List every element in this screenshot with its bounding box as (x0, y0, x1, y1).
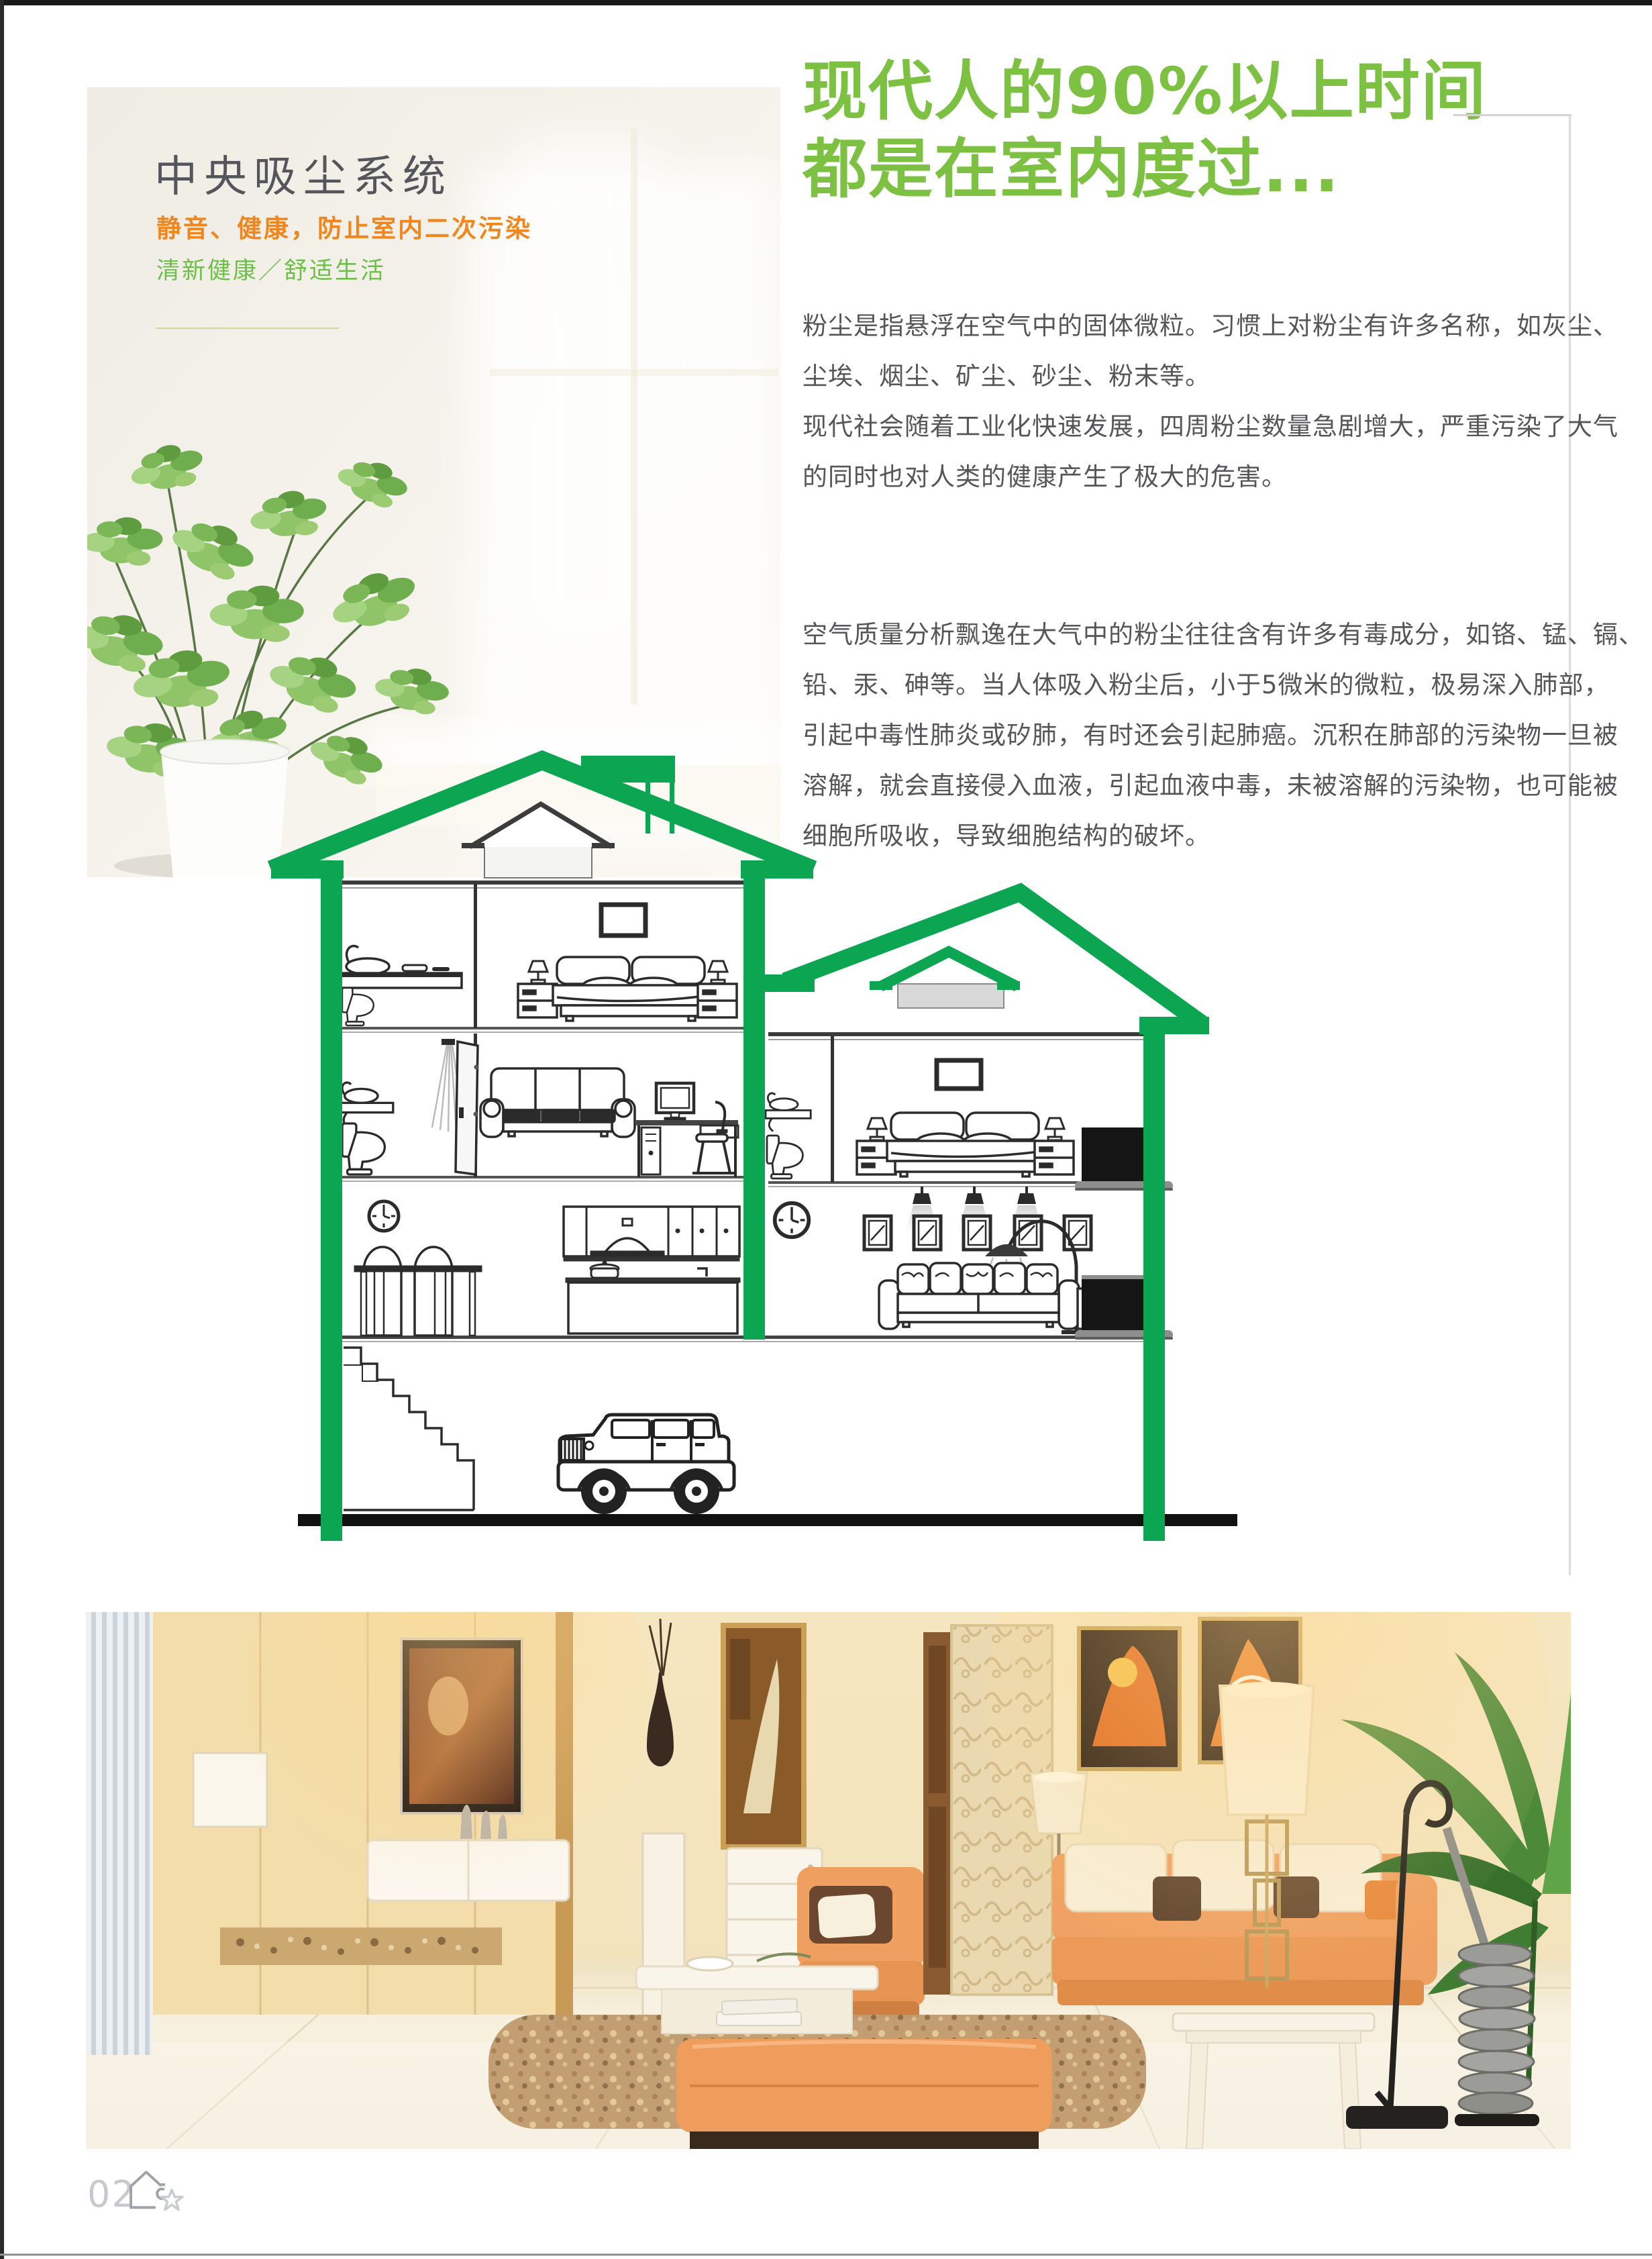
headline: 现代人的90%以上时间 都是在室内度过... (803, 52, 1487, 208)
paragraph-line: 的同时也对人类的健康产生了极大的危害。 (803, 452, 1618, 502)
headline-line2: 都是在室内度过... (803, 130, 1487, 208)
paragraph-line: 铅、汞、砷等。当人体吸入粉尘后，小于5微米的微粒，极易深入肺部， (803, 660, 1644, 710)
living-room-photo (86, 1612, 1571, 2149)
page-border-top (0, 0, 1652, 5)
paragraph-line: 粉尘是指悬浮在空气中的固体微粒。习惯上对粉尘有许多名称，如灰尘、 (803, 301, 1618, 351)
star-icon (160, 2188, 184, 2213)
books (717, 1999, 801, 2025)
wall-art-center (723, 1625, 804, 1847)
page-title: 中央吸尘系统 (154, 142, 452, 204)
paragraph-line: 现代社会随着工业化快速发展，四周粉尘数量急剧增大，严重污染了大气 (803, 401, 1618, 452)
jeep-illustration (558, 1415, 734, 1514)
decorative-rule (156, 328, 339, 329)
corner-rule-horizontal (1453, 114, 1571, 116)
headline-line1: 现代人的90%以上时间 (803, 52, 1487, 130)
subtitle-orange: 静音、健康，防止室内二次污染 (156, 208, 532, 244)
brochure-page: { "page": { "left_panel": { "title": "中央… (0, 0, 1652, 2259)
curtain (86, 1612, 153, 2055)
paragraph-line: 空气质量分析飘逸在大气中的粉尘往往含有许多有毒成分，如铬、锰、镉、 (803, 609, 1644, 660)
house-cutaway-diagram (255, 725, 1275, 1564)
paragraph-line: 尘埃、烟尘、矿尘、砂尘、粉末等。 (803, 351, 1618, 401)
page-border-left (0, 0, 4, 2259)
page-border-bottom (0, 2254, 1652, 2256)
paragraph-1: 粉尘是指悬浮在空气中的固体微粒。习惯上对粉尘有许多名称，如灰尘、 尘埃、烟尘、矿… (803, 301, 1618, 502)
subtitle-green: 清新健康／舒适生活 (156, 252, 386, 286)
